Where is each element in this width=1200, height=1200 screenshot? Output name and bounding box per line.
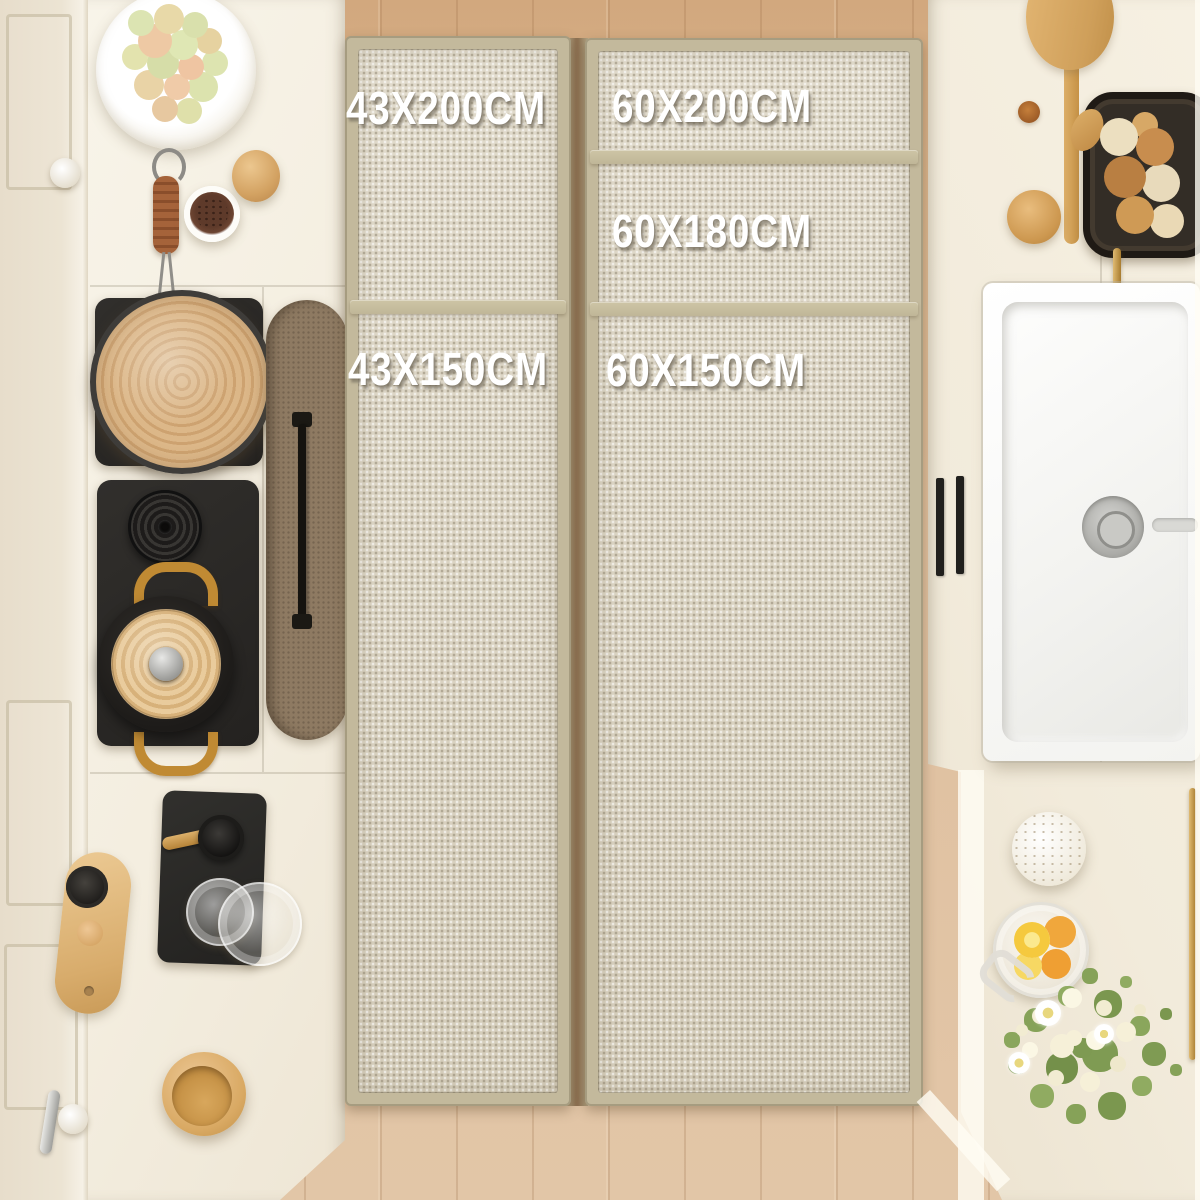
oven-door-handle — [298, 424, 306, 620]
hanging-utensil-handle — [153, 176, 179, 254]
wooden-bowl-inside — [172, 1066, 232, 1126]
daisy-flower — [1094, 1024, 1114, 1044]
seeds — [196, 198, 228, 230]
size-label-43x200: 43X200CM — [346, 81, 546, 135]
wooden-knob — [1007, 190, 1061, 244]
kitchen-photo: 43X200CM 60X200CM 60X180CM 43X150CM 60X1… — [0, 0, 1200, 1200]
sink-cabinet-handle — [956, 476, 964, 574]
rug-divider — [590, 302, 918, 316]
kettle-lid-knob — [158, 520, 172, 534]
sink-cabinet-handle — [936, 478, 944, 576]
daisy-flower — [1008, 1052, 1030, 1074]
size-label-60x200: 60X200CM — [612, 79, 812, 133]
rug-divider — [350, 300, 566, 314]
oven-handle-mount — [292, 614, 312, 629]
seam-line — [90, 285, 345, 287]
daisy-flower — [1035, 1000, 1061, 1026]
cabinet-panel — [6, 700, 72, 906]
pan-with-straw-lid — [90, 290, 274, 474]
rug-left-43cm — [345, 36, 571, 1106]
black-jar — [66, 866, 108, 908]
glass-bowl — [218, 882, 302, 966]
sink-overflow-slot — [1152, 518, 1198, 532]
rug-right-60cm — [585, 38, 923, 1106]
faucet-head — [198, 815, 244, 861]
pot-handle — [134, 732, 218, 776]
spice-ball — [1018, 101, 1040, 123]
board-hole — [84, 986, 94, 996]
wooden-knob — [232, 150, 280, 202]
sink-drain-cap — [1097, 511, 1135, 549]
cabinet-knob — [50, 158, 80, 188]
size-label-43x150: 43X150CM — [348, 342, 548, 396]
seam-line — [90, 772, 345, 774]
dough-ball — [1012, 812, 1086, 886]
lemon-slices — [1014, 922, 1050, 958]
right-edge-trim — [1195, 0, 1200, 1200]
bread-slices — [1100, 118, 1138, 156]
pot-lid-knob — [149, 647, 183, 681]
flower-bouquet-blooms — [1066, 1030, 1082, 1046]
rug-divider — [590, 150, 918, 164]
rug-fabric — [358, 49, 558, 1093]
wooden-paddle-handle — [1064, 60, 1079, 244]
cabinet-knob — [58, 1104, 88, 1134]
size-label-60x150: 60X150CM — [606, 343, 806, 397]
board-knob — [77, 920, 103, 946]
size-label-60x180: 60X180CM — [612, 204, 812, 258]
oven-door — [266, 300, 348, 740]
flower-buds — [128, 10, 154, 36]
